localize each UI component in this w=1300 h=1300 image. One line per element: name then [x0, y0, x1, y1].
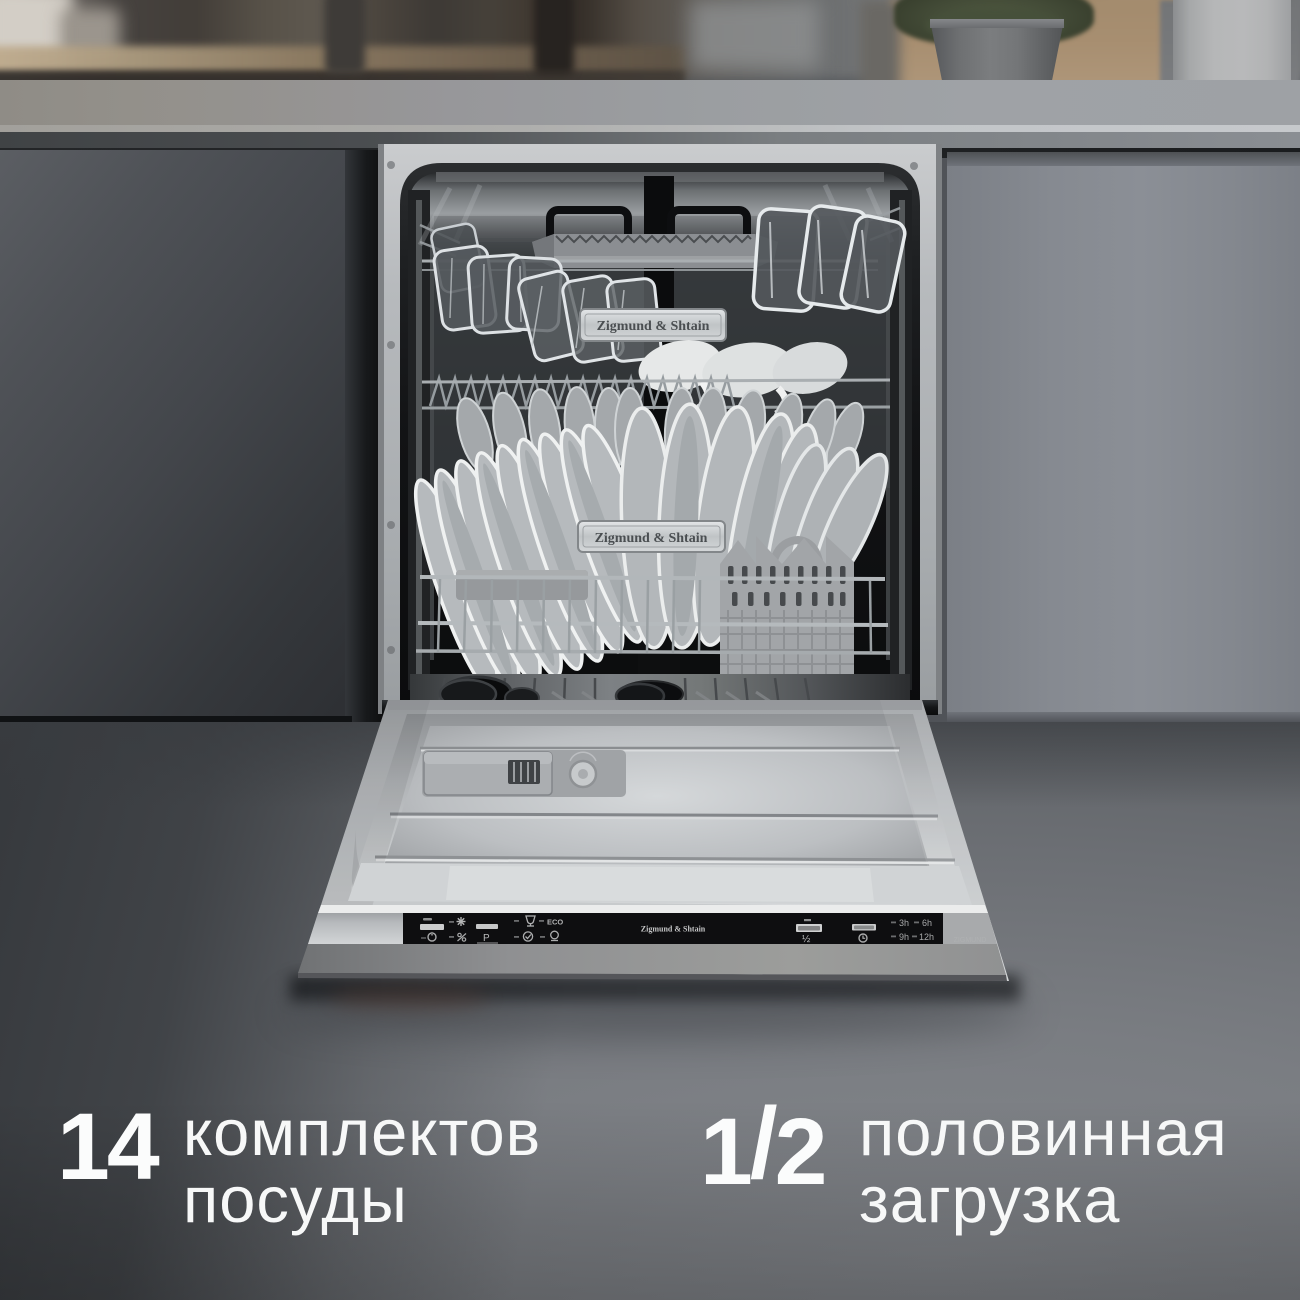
- svg-text:ECO: ECO: [547, 918, 563, 927]
- svg-text:Zigmund & Shtain: Zigmund & Shtain: [597, 319, 710, 334]
- svg-text:12h: 12h: [919, 932, 934, 942]
- svg-text:Zigmund & Shtain: Zigmund & Shtain: [641, 925, 706, 934]
- svg-text:P: P: [483, 933, 490, 944]
- svg-text:9h: 9h: [899, 932, 909, 942]
- svg-text:ZIGMUND: ZIGMUND: [954, 937, 987, 944]
- svg-text:3h: 3h: [899, 918, 909, 928]
- svg-text:½: ½: [802, 934, 811, 945]
- svg-text:6h: 6h: [922, 918, 932, 928]
- svg-text:Zigmund & Shtain: Zigmund & Shtain: [595, 531, 708, 546]
